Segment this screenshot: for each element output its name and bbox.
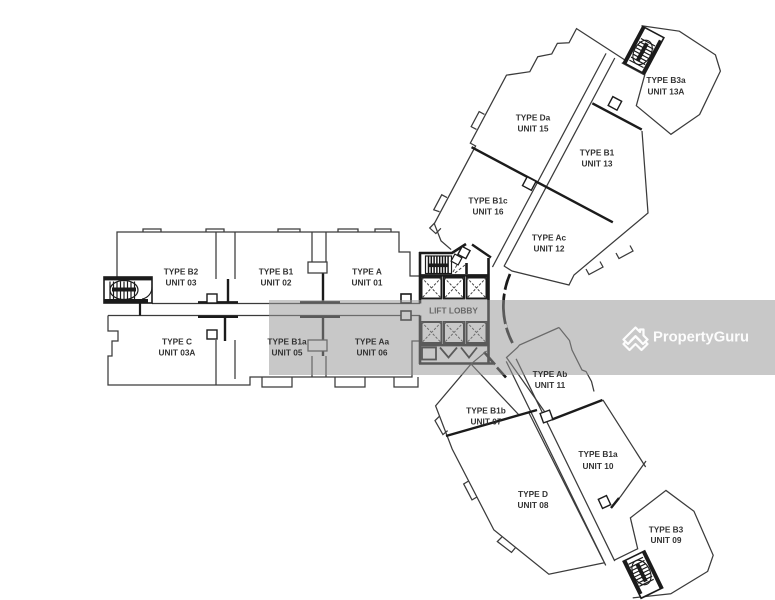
svg-text:TYPE Aa: TYPE Aa [355, 337, 390, 347]
svg-text:TYPE B1b: TYPE B1b [466, 406, 506, 416]
svg-text:TYPE B3a: TYPE B3a [646, 75, 686, 85]
svg-text:TYPE B1: TYPE B1 [580, 148, 615, 158]
svg-text:UNIT 06: UNIT 06 [357, 348, 388, 358]
svg-text:TYPE D: TYPE D [518, 489, 548, 499]
svg-text:UNIT 03A: UNIT 03A [159, 348, 196, 358]
svg-text:TYPE B1c: TYPE B1c [468, 196, 508, 206]
svg-text:UNIT 07: UNIT 07 [471, 417, 502, 427]
svg-text:TYPE Ac: TYPE Ac [532, 233, 567, 243]
svg-text:TYPE B1a: TYPE B1a [267, 337, 307, 347]
svg-text:TYPE B2: TYPE B2 [164, 267, 199, 277]
svg-text:UNIT 05: UNIT 05 [272, 348, 303, 358]
svg-text:UNIT 10: UNIT 10 [583, 461, 614, 471]
svg-text:TYPE B3: TYPE B3 [649, 525, 684, 535]
svg-text:TYPE Ab: TYPE Ab [533, 369, 568, 379]
svg-text:UNIT 02: UNIT 02 [261, 278, 292, 288]
svg-text:UNIT 11: UNIT 11 [535, 380, 566, 390]
svg-text:TYPE Da: TYPE Da [516, 113, 551, 123]
svg-text:UNIT 12: UNIT 12 [534, 244, 565, 254]
svg-text:TYPE B1a: TYPE B1a [578, 449, 618, 459]
svg-text:PropertyGuru: PropertyGuru [653, 330, 749, 346]
svg-text:TYPE A: TYPE A [352, 267, 382, 277]
svg-text:UNIT 03: UNIT 03 [166, 278, 197, 288]
svg-text:UNIT 13A: UNIT 13A [648, 87, 685, 97]
svg-text:UNIT 08: UNIT 08 [518, 500, 549, 510]
svg-text:TYPE C: TYPE C [162, 337, 192, 347]
svg-text:UNIT 13: UNIT 13 [582, 159, 613, 169]
svg-text:TYPE B1: TYPE B1 [259, 267, 294, 277]
svg-text:UNIT 15: UNIT 15 [518, 124, 549, 134]
svg-text:UNIT 01: UNIT 01 [352, 278, 383, 288]
svg-text:UNIT 09: UNIT 09 [651, 535, 682, 545]
svg-text:UNIT 16: UNIT 16 [473, 207, 504, 217]
